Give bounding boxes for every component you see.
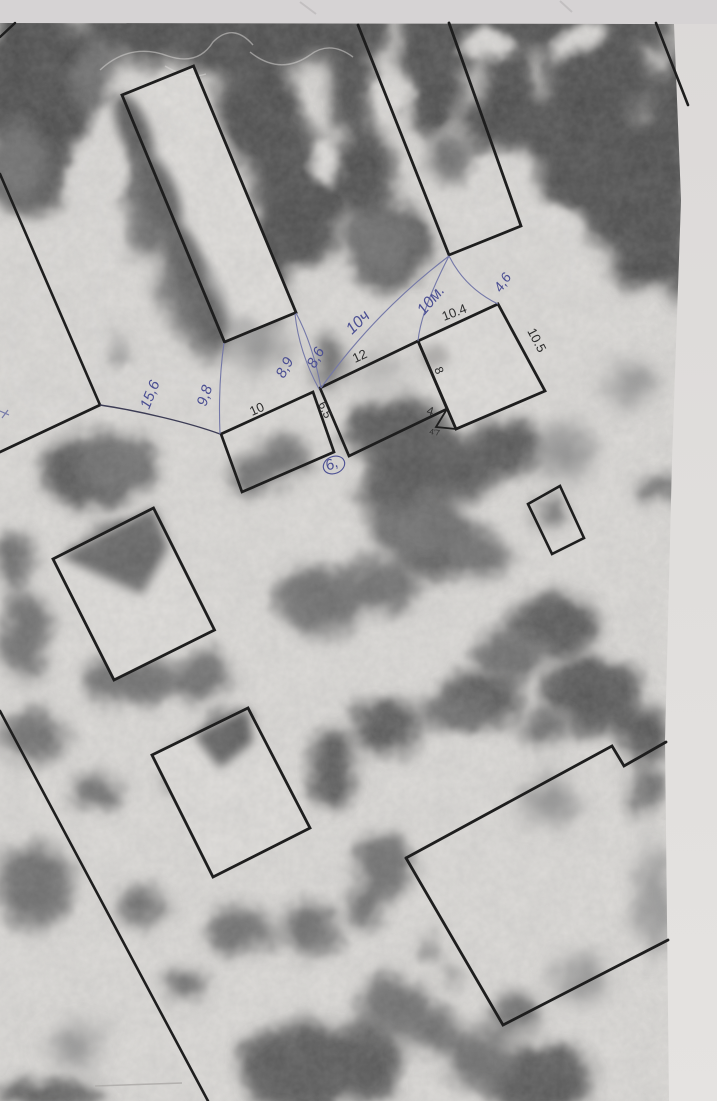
svg-text:4'7: 4'7	[429, 427, 441, 438]
